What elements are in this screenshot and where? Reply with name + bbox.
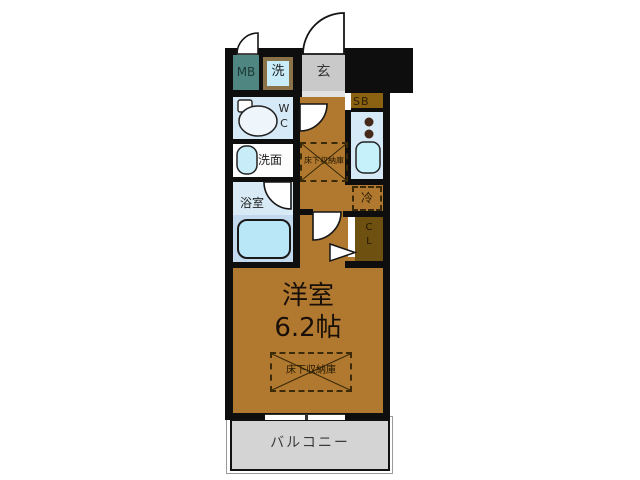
entrance-label: 玄 bbox=[302, 65, 345, 79]
meter-box-door-opening bbox=[237, 48, 258, 55]
window-center-tick bbox=[305, 414, 308, 420]
main-room-name: 洋室 bbox=[233, 283, 383, 309]
wall-left bbox=[225, 48, 233, 420]
wall-left-column-right bbox=[293, 93, 300, 268]
underfloor-storage-room-label: 床下収納庫 bbox=[270, 366, 352, 376]
wall-closet-bottom bbox=[345, 261, 390, 268]
meter-box-label: MB bbox=[233, 66, 259, 78]
bathroom-label: 浴室 bbox=[240, 197, 264, 209]
underfloor-storage-hall-label: 床下収納庫 bbox=[300, 157, 348, 165]
entrance-door-opening bbox=[303, 48, 344, 55]
entrance-step bbox=[302, 91, 345, 97]
shoe-box-label: SB bbox=[353, 96, 370, 107]
main-room-size: 6.2帖 bbox=[233, 315, 383, 341]
closet-label-line1: C bbox=[355, 223, 383, 233]
wall-kitchen-bottom bbox=[345, 179, 390, 185]
wall-service-row bbox=[225, 90, 302, 97]
shoe-box-gap bbox=[345, 93, 351, 110]
wall-door-stub bbox=[293, 209, 313, 215]
wall-bathroom-bottom bbox=[225, 262, 300, 268]
floor-plan: MB 洗 玄 SB W C 洗面 浴室 冷 C L 洋室 6.2帖 床下収納庫 … bbox=[0, 0, 640, 480]
wall-wc-washroom bbox=[233, 139, 300, 144]
closet-door-track bbox=[348, 217, 355, 257]
washer-label: 洗 bbox=[263, 65, 293, 78]
bathtub-zone bbox=[233, 215, 293, 262]
refrigerator-label: 冷 bbox=[352, 192, 382, 204]
closet-label-line2: L bbox=[355, 237, 383, 247]
wall-right bbox=[383, 93, 390, 420]
wall-kitchen-top bbox=[351, 108, 383, 112]
structural-pillar bbox=[345, 48, 413, 93]
toilet-label-line2: C bbox=[276, 118, 292, 129]
washroom-label: 洗面 bbox=[258, 154, 282, 166]
balcony-label: バルコニー bbox=[230, 436, 390, 450]
toilet-label-line1: W bbox=[276, 103, 292, 114]
room-kitchen bbox=[351, 112, 383, 179]
wall-washroom-bathroom bbox=[233, 177, 300, 182]
